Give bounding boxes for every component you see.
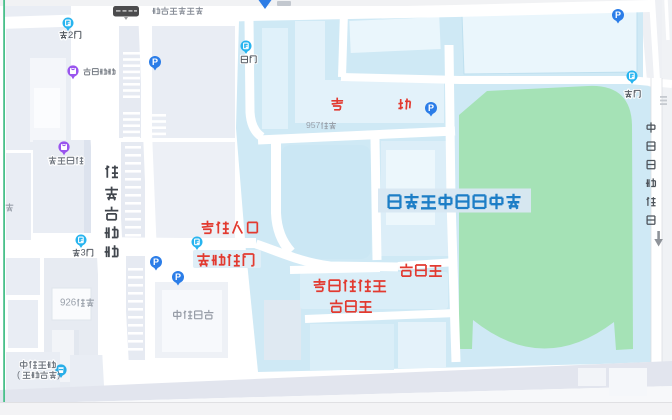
svg-text:P: P [152,57,158,67]
svg-text:P: P [175,272,181,282]
svg-text:P: P [153,257,159,267]
svg-text:(: ( [17,370,20,380]
svg-text:P: P [615,10,621,20]
svg-text:7: 7 [316,120,321,130]
svg-text:3: 3 [81,248,86,258]
svg-text:P: P [428,103,434,113]
svg-text:2: 2 [68,30,73,41]
svg-text:): ) [57,370,60,380]
svg-text:6: 6 [71,298,77,309]
